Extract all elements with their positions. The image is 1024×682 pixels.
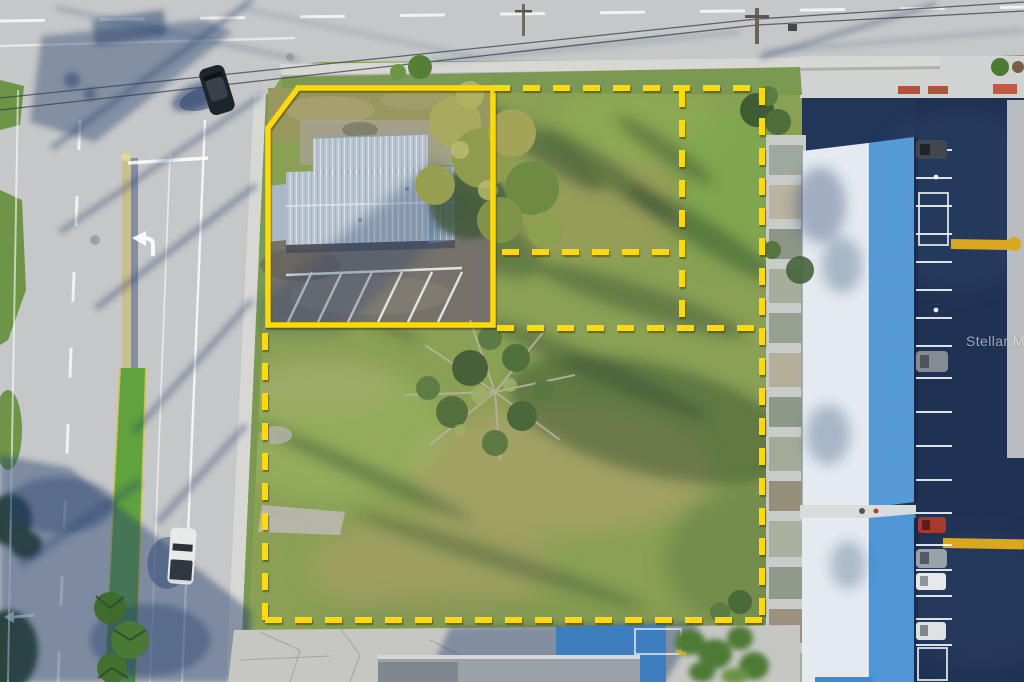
aerial-photo: Stellar MLS (0, 0, 1024, 682)
aerial-scene (0, 0, 1024, 682)
watermark: Stellar MLS (966, 333, 1024, 349)
manhole-cover (90, 235, 100, 245)
bottom-strip (228, 623, 873, 682)
blue-strip (815, 677, 873, 682)
bush-top (408, 55, 432, 79)
bush (991, 58, 1009, 76)
right-edge-walk (1007, 100, 1024, 458)
motel-complex (766, 135, 918, 682)
motel-building-bottom (802, 514, 918, 682)
